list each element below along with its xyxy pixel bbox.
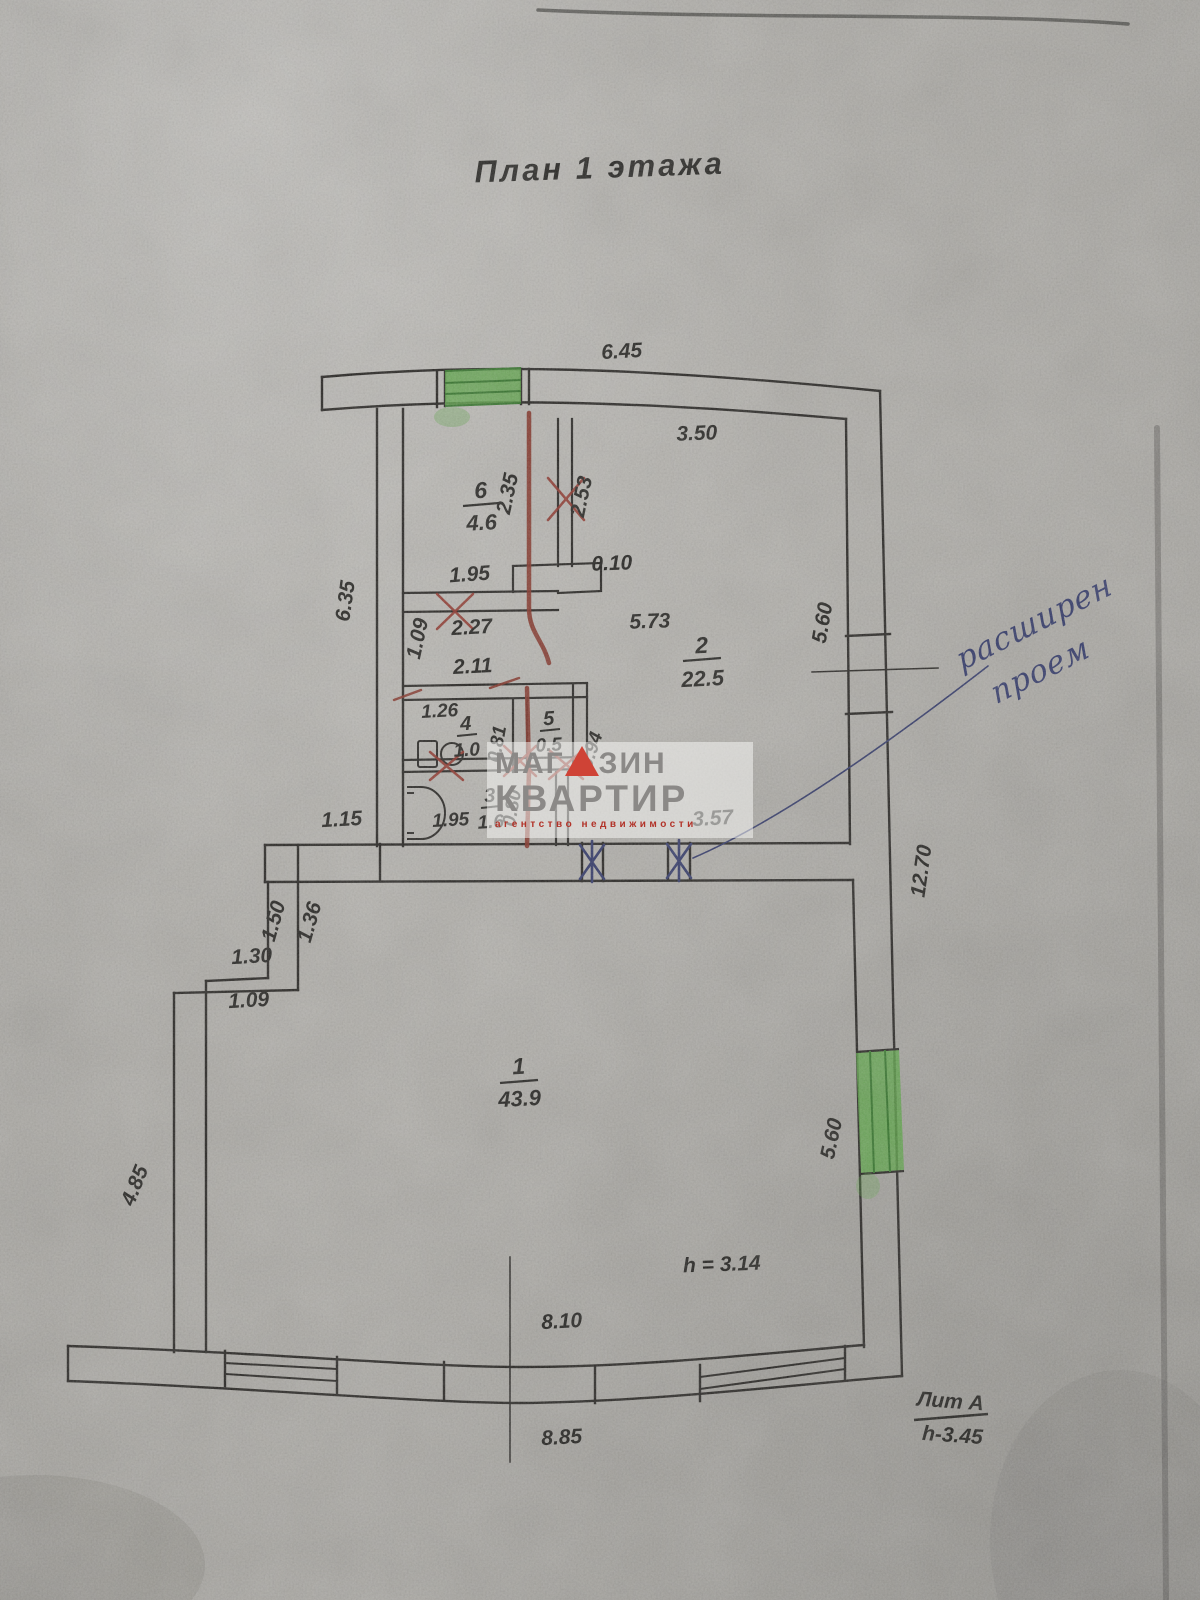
watermark-word1-part2: ЗИН	[599, 747, 667, 780]
watermark-word1-part1: МАГ	[495, 747, 565, 780]
scanned-floor-plan-page: План 1 этажа	[0, 0, 1200, 1600]
red-triangle-icon	[565, 746, 599, 776]
watermark-tagline: агентство недвижимости	[495, 820, 745, 831]
agency-watermark: МАГЗИН КВАРТИР агентство недвижимости	[487, 742, 753, 838]
watermark-line2: КВАРТИР	[495, 780, 745, 819]
watermark-line1: МАГЗИН	[495, 746, 745, 780]
